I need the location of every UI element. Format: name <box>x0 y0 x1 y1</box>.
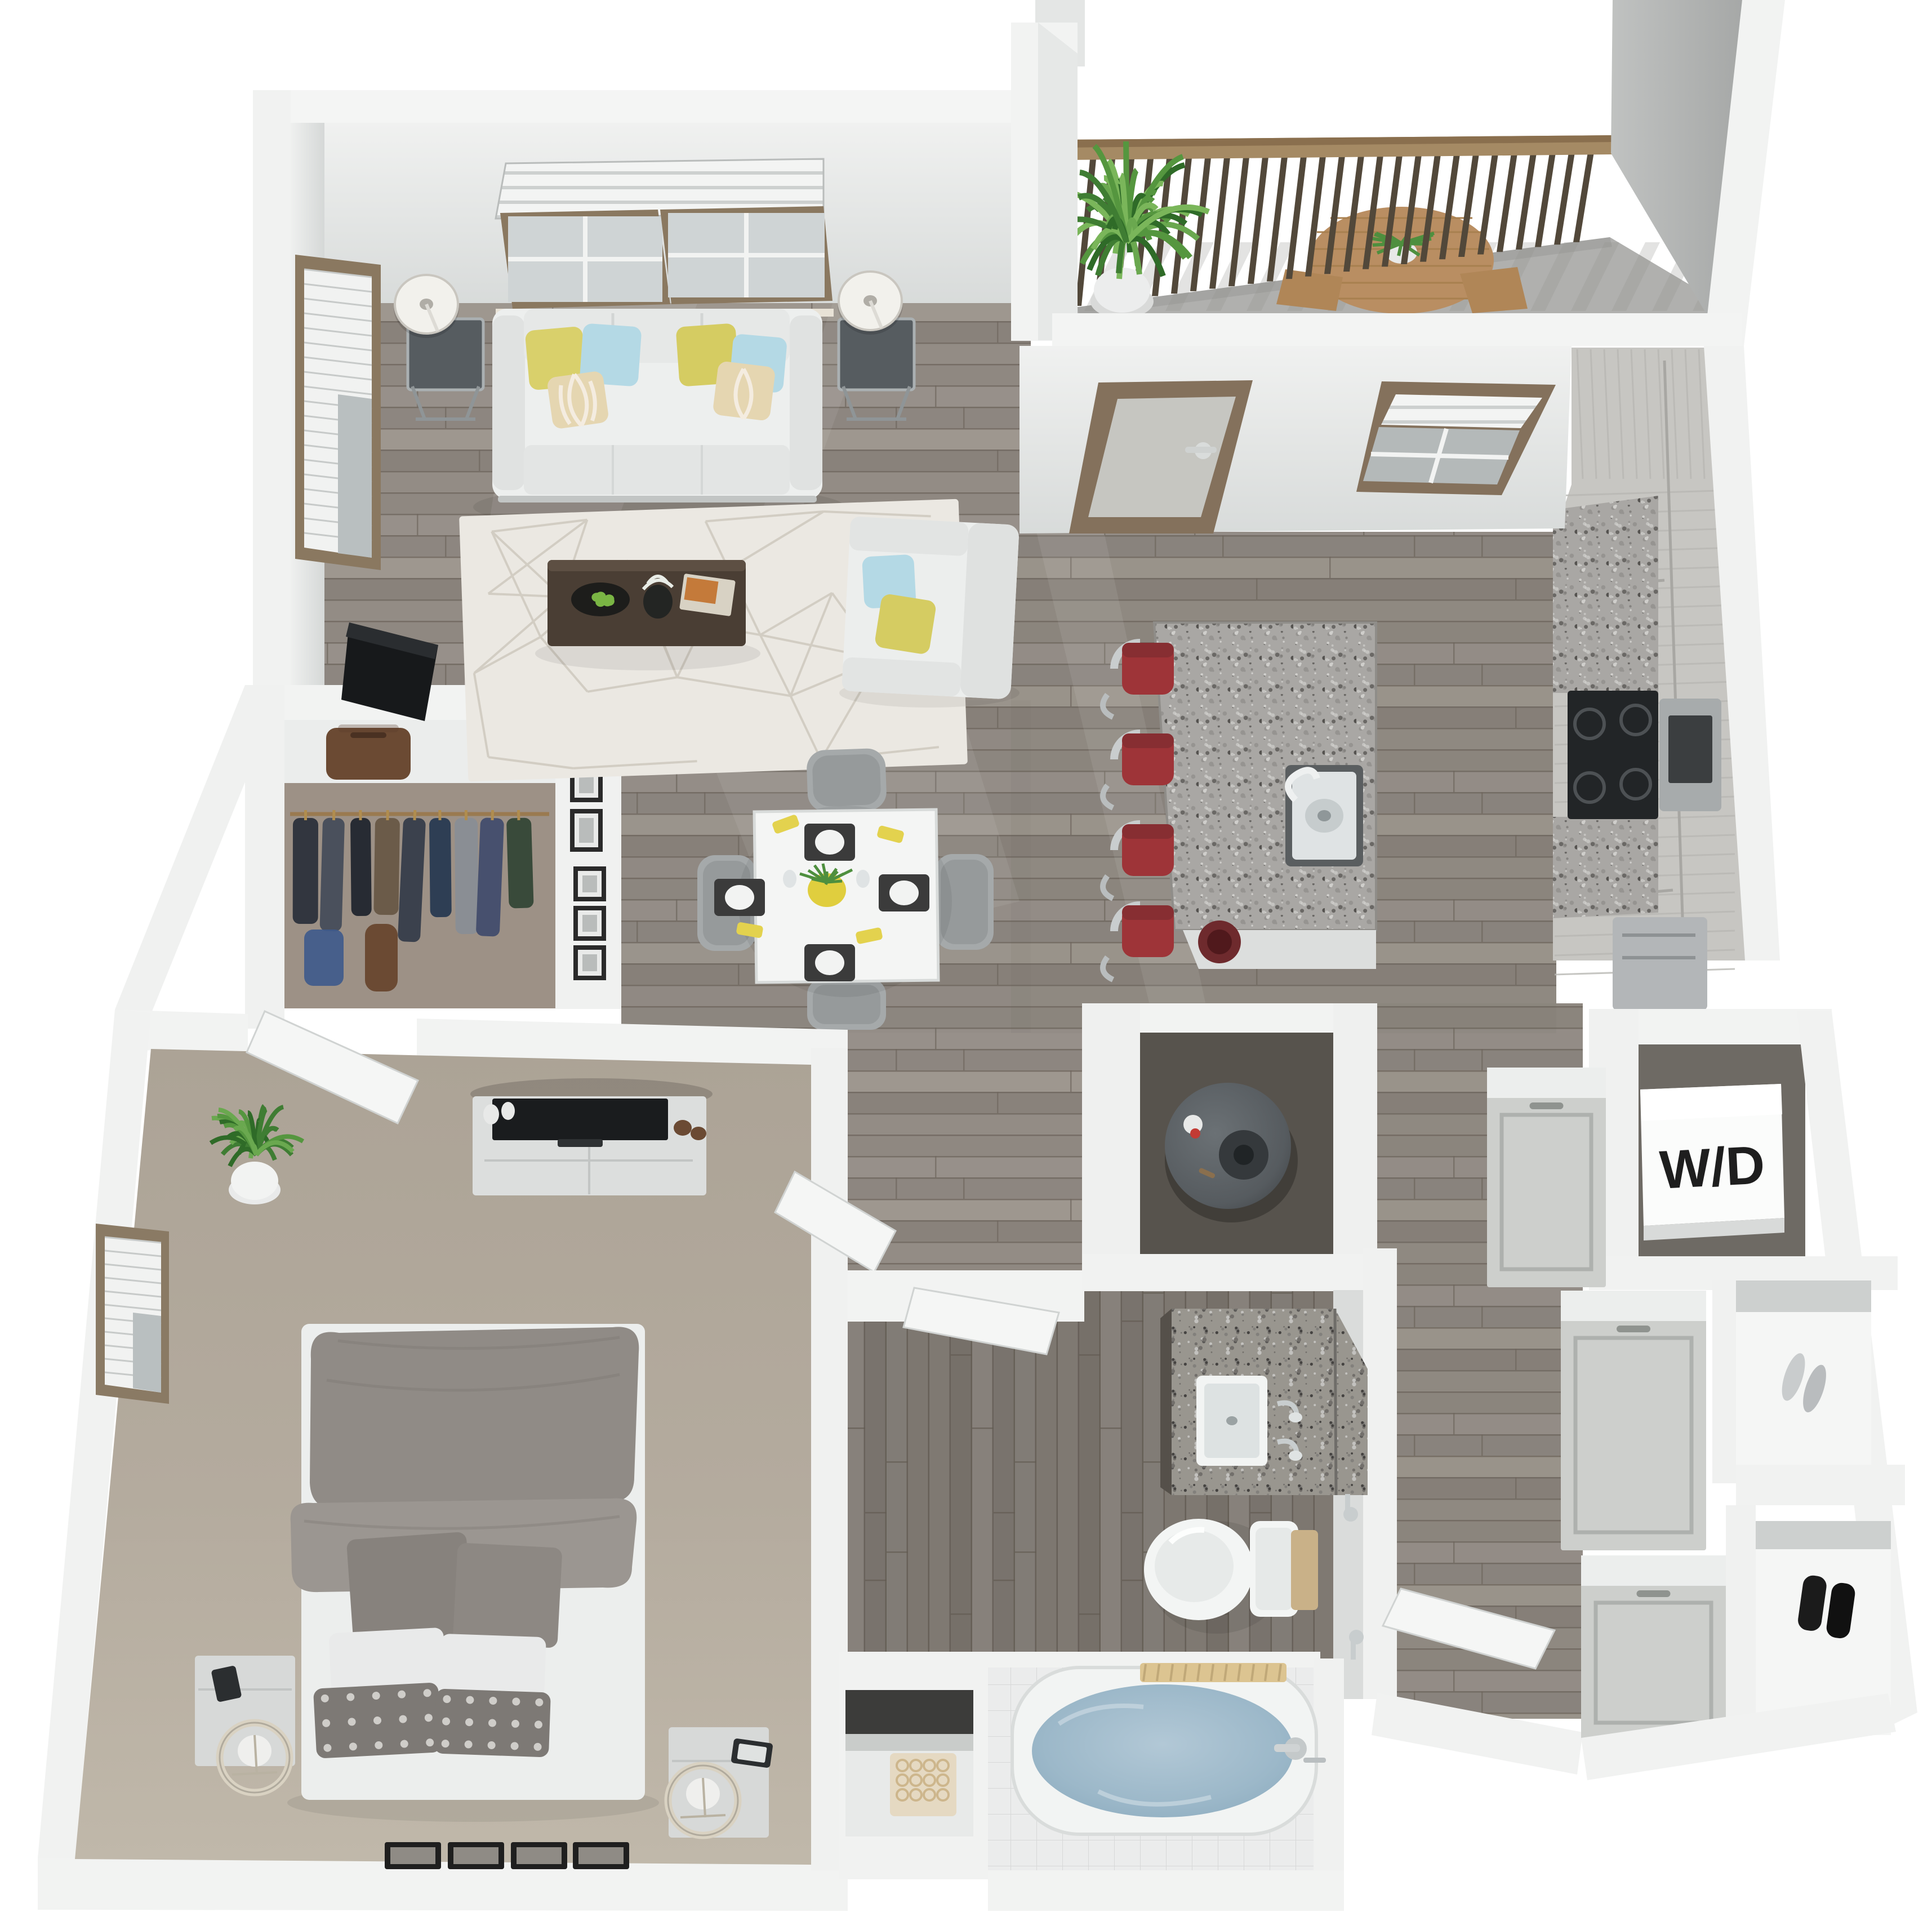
svg-text:W/D: W/D <box>1658 1135 1766 1200</box>
